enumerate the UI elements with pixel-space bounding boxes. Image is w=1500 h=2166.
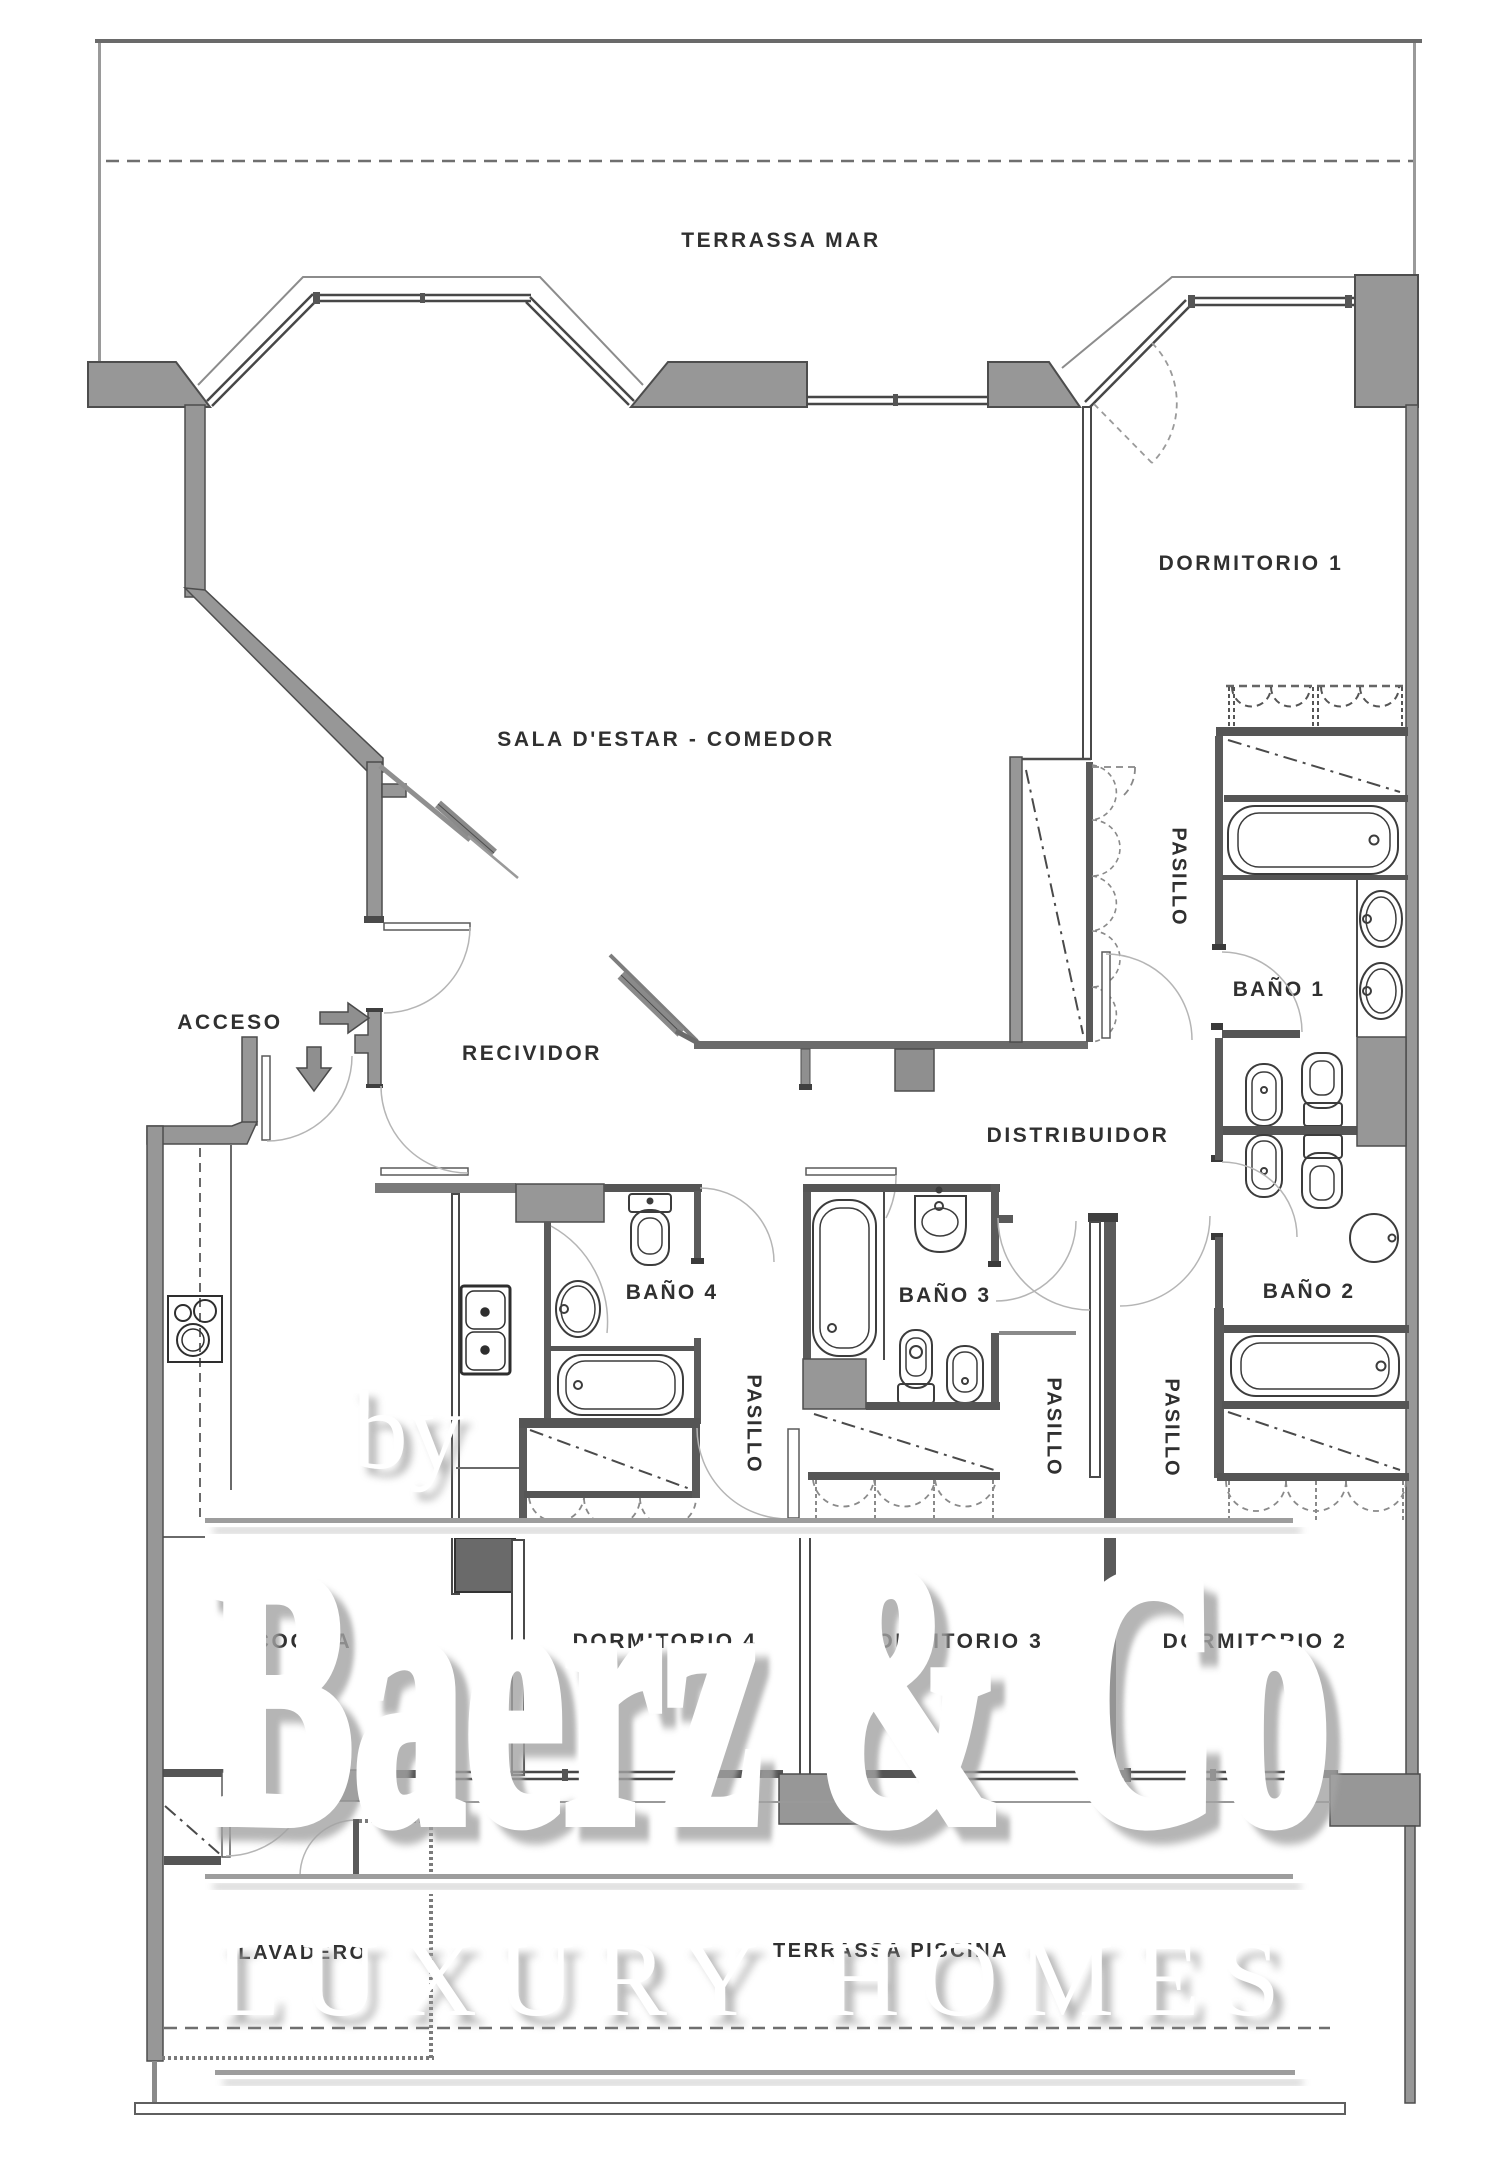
svg-text:TERRASSA MAR: TERRASSA MAR	[681, 229, 881, 252]
svg-text:PASILLO: PASILLO	[743, 1374, 765, 1473]
svg-text:BAÑO 1: BAÑO 1	[1233, 978, 1326, 1001]
svg-text:PASILLO: PASILLO	[1168, 827, 1190, 926]
svg-text:RECIVIDOR: RECIVIDOR	[462, 1042, 602, 1065]
svg-text:BAÑO 2: BAÑO 2	[1263, 1280, 1356, 1303]
svg-text:PASILLO: PASILLO	[1043, 1377, 1065, 1476]
svg-text:by: by	[352, 1369, 464, 1493]
svg-text:PASILLO: PASILLO	[1161, 1378, 1183, 1477]
svg-text:DORMITORIO 1: DORMITORIO 1	[1159, 552, 1344, 575]
svg-text:LUXURY HOMES: LUXURY HOMES	[215, 1920, 1300, 2039]
svg-text:BAÑO 4: BAÑO 4	[626, 1281, 719, 1304]
svg-text:ACCESO: ACCESO	[177, 1011, 282, 1034]
svg-text:SALA D'ESTAR - COMEDOR: SALA D'ESTAR - COMEDOR	[497, 728, 835, 751]
svg-text:BAÑO 3: BAÑO 3	[899, 1284, 992, 1307]
svg-text:Baerz & Co: Baerz & Co	[205, 1492, 1331, 1902]
svg-text:DISTRIBUIDOR: DISTRIBUIDOR	[987, 1124, 1170, 1147]
